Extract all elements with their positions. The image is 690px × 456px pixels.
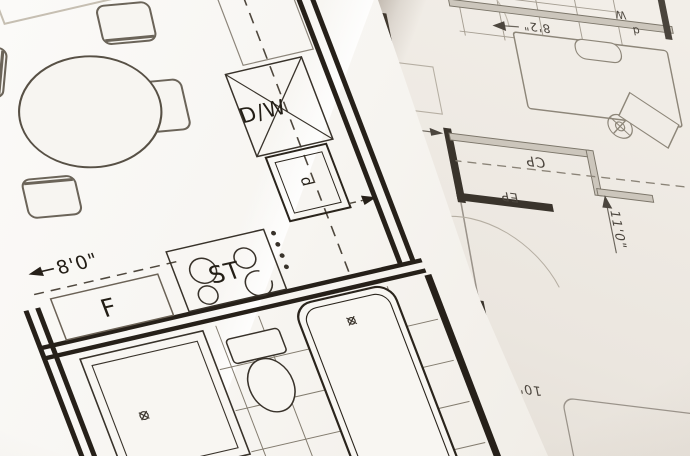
dining-table xyxy=(2,43,179,181)
dim-arrow xyxy=(430,128,444,137)
counter xyxy=(195,0,313,65)
stove-knobs xyxy=(270,230,289,269)
closet-wall-gray xyxy=(449,133,590,157)
chair xyxy=(21,175,83,218)
room-outline xyxy=(562,398,690,456)
chair xyxy=(95,2,157,45)
chair xyxy=(0,42,7,99)
dim-arrow xyxy=(27,267,44,279)
toilet-tank xyxy=(225,328,287,364)
bathtub xyxy=(293,283,476,456)
cp-label: CP xyxy=(523,152,546,170)
dim-dashed xyxy=(349,200,363,203)
closet-pole-dashed xyxy=(455,158,690,202)
dim-line xyxy=(40,269,54,272)
blueprint-photo: CP EP 11'0" 10'0 8'2" 8'0 d W D xyxy=(0,0,690,456)
ep-label: EP xyxy=(499,188,520,205)
dim-arrow xyxy=(491,20,506,31)
wall xyxy=(656,0,672,40)
